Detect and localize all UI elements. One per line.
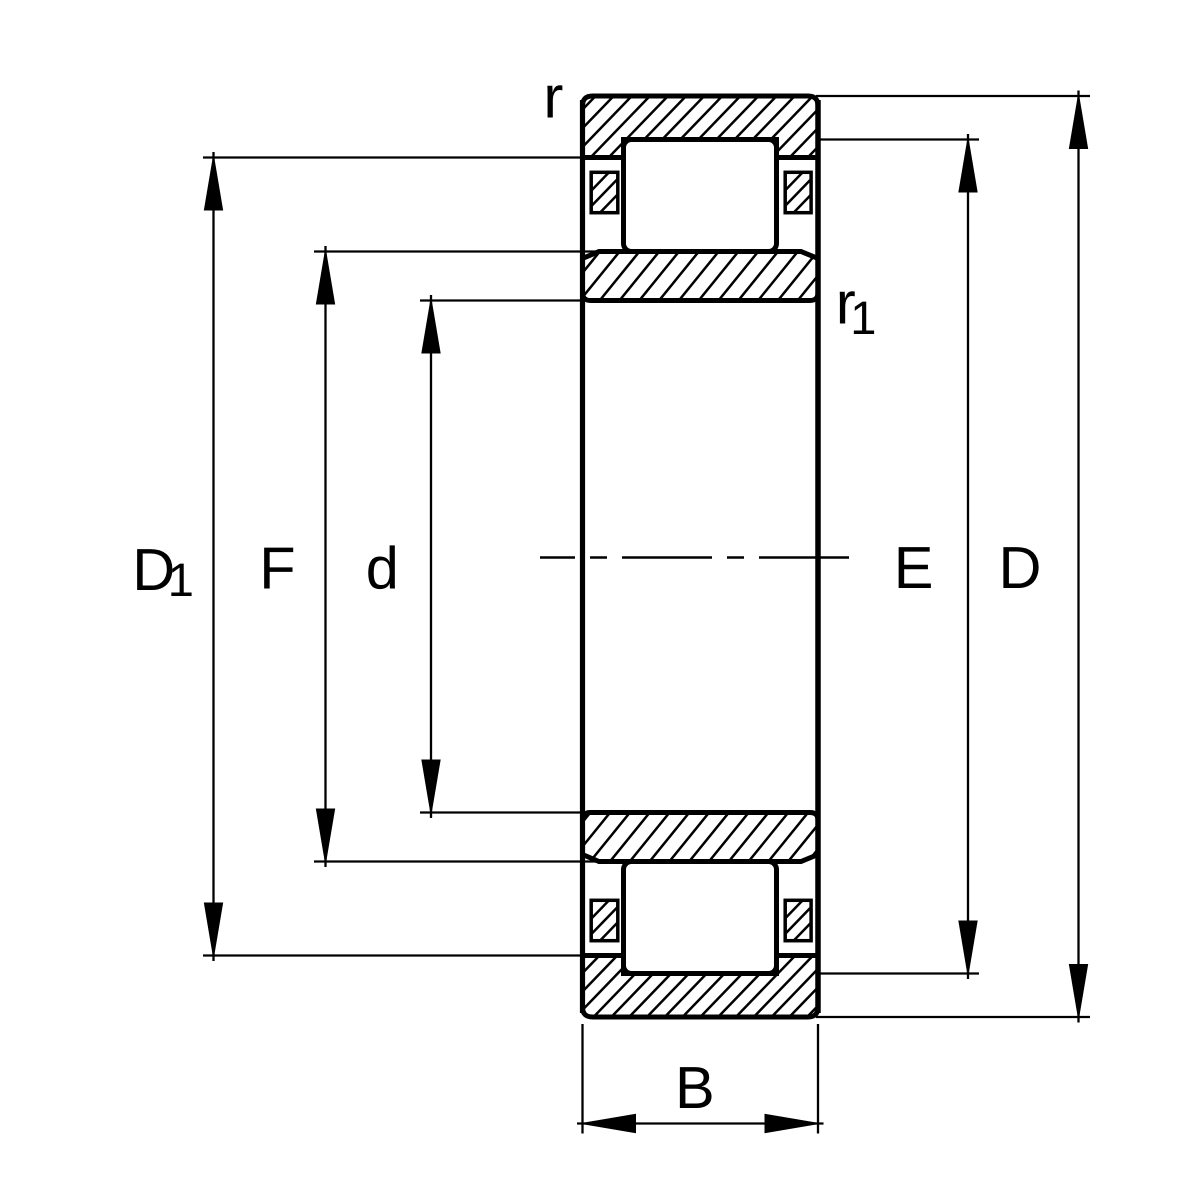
svg-text:r1: r1: [836, 270, 877, 345]
svg-text:D1: D1: [132, 536, 194, 606]
svg-text:B: B: [675, 1054, 715, 1121]
svg-text:F: F: [259, 535, 295, 602]
svg-text:d: d: [366, 535, 399, 602]
svg-text:r: r: [543, 64, 563, 131]
svg-text:D: D: [999, 534, 1042, 601]
svg-text:E: E: [894, 534, 934, 601]
